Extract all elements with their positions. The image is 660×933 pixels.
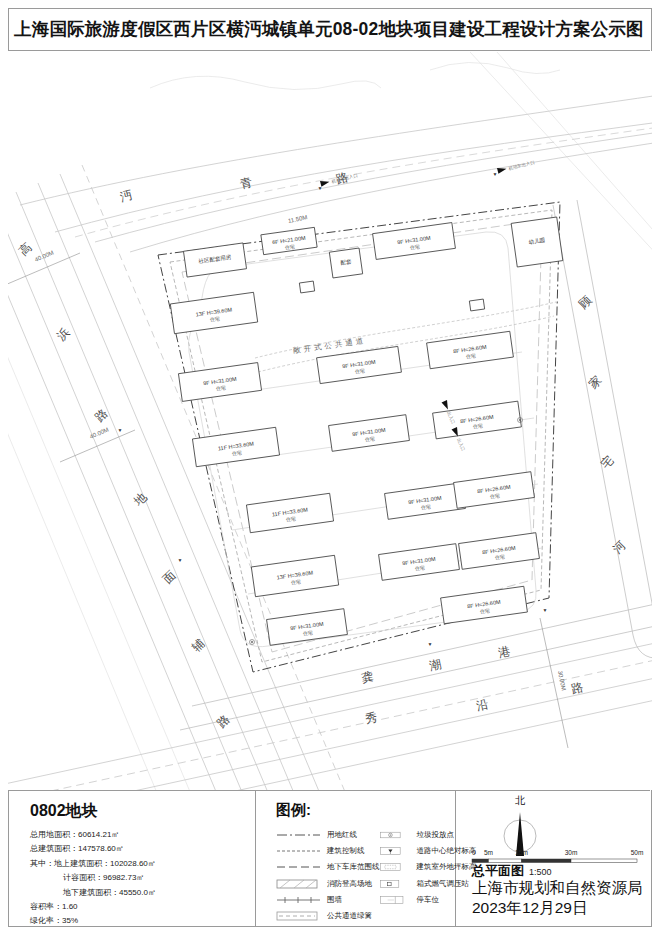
- building: 9F H=31.00M住宅: [385, 483, 466, 520]
- parcel-title: 0802地块: [30, 801, 255, 822]
- dimension-text: 40.00M: [34, 249, 55, 262]
- agency-name: 上海市规划和自然资源局: [472, 878, 643, 899]
- trash-symbol: [380, 829, 412, 841]
- building: 9F H=31.00M住宅: [329, 415, 410, 452]
- building: 11F H=33.60M住宅: [246, 493, 333, 532]
- bldg-elev-symbol: [380, 861, 412, 873]
- road-elevation-marker: ▼: [543, 607, 548, 613]
- north-label: 北: [490, 794, 550, 808]
- road-elevation-marker: ▼: [118, 427, 123, 433]
- road-name-char: 河: [610, 538, 628, 556]
- building: 8F H=26.60M住宅: [427, 331, 514, 368]
- dimension-text: 11.50M: [287, 214, 307, 224]
- building: 9F H=31.00M住宅: [317, 346, 402, 383]
- legend-item-label: 地下车库范围线: [327, 862, 380, 872]
- scale-bar-segment: [571, 859, 637, 863]
- dashdot-symbol: [276, 829, 322, 841]
- stat-row: 总用地面积：60614.21㎡: [30, 828, 255, 842]
- stat-row: 总建筑面积：147578.60㎡: [30, 842, 255, 856]
- road-name-char: 沔: [119, 188, 134, 204]
- road-elev-symbol: [380, 845, 412, 857]
- buildings-layer: 社区配套用房6F H=21.00M住宅配套9F H=31.00M住宅幼儿园13F…: [170, 217, 563, 645]
- scale-tick-label: 30m: [565, 849, 578, 856]
- road-name-char: 浜: [54, 325, 72, 343]
- stat-row: 容积率：1.60: [30, 900, 255, 914]
- building: [299, 281, 314, 293]
- road-name-char: 顾: [576, 293, 594, 311]
- road-elevation-marker: ▼: [428, 641, 433, 647]
- parcel-info-panel: 0802地块 总用地面积：60614.21㎡总建筑面积：147578.60㎡其中…: [8, 791, 256, 926]
- legend-column-left: 用地红线建筑控制线地下车库范围线消防登高场地围墙公共通道绿篱: [276, 827, 380, 924]
- road-name-char: 青: [239, 175, 254, 191]
- legend-item: 围墙: [276, 892, 380, 908]
- gas-symbol: [380, 878, 412, 890]
- road-elevation-marker: ▼: [178, 557, 183, 563]
- dashed-fine-symbol: [276, 845, 322, 857]
- entrance-marker: 机动车出入口: [497, 159, 535, 174]
- stat-row: 计容面积：96982.73㎡: [30, 871, 255, 885]
- road-elevation-marker: ▼: [318, 185, 323, 191]
- legend-item: 公共通道绿篱: [276, 908, 380, 924]
- building: 幼儿园: [511, 217, 563, 267]
- hedge-symbol: [276, 910, 322, 922]
- building: 9F H=31.00M住宅: [178, 363, 261, 402]
- road-name-char: 路: [214, 712, 232, 730]
- stat-row: 绿化率：35%: [30, 914, 255, 928]
- road-name-char: 路: [92, 406, 110, 424]
- legend-item-label: 公共通道绿篱: [327, 911, 372, 921]
- legend-item-label: 停车位: [417, 895, 440, 905]
- scale-tick-label: 5m: [484, 849, 493, 856]
- building: 6F H=21.00M住宅: [261, 227, 317, 254]
- building: 配套: [329, 248, 362, 278]
- road-elevation-marker: ▼: [493, 171, 498, 177]
- dimension-text: 30.00M: [557, 670, 567, 691]
- fire-pad-symbol: [276, 878, 322, 890]
- entrance-label: 机动车出入口: [508, 160, 535, 171]
- building: 8F H=26.60M住宅: [441, 586, 528, 623]
- building: 9F H=31.00M住宅: [373, 223, 456, 260]
- legend-panel: 图例: 用地红线建筑控制线地下车库范围线消防登高场地围墙公共通道绿篱 垃圾投放点…: [256, 791, 456, 926]
- title-bar: 上海国际旅游度假区西片区横沔城镇单元08-02地块项目建设工程设计方案公示图: [8, 8, 650, 51]
- building: 8F H=26.60M住宅: [454, 472, 535, 509]
- dimension-text: 40.00M: [89, 426, 110, 439]
- stat-row: 其中：地上建筑面积：102028.60㎡: [30, 857, 255, 871]
- legend-item-label: 建筑控制线: [327, 846, 365, 856]
- legend-item: 消防登高场地: [276, 876, 380, 892]
- legend-item: 用地红线: [276, 827, 380, 843]
- building: 13F H=39.60M住宅: [170, 292, 257, 333]
- building: [469, 299, 484, 311]
- road-name-char: 潮: [428, 657, 443, 673]
- building: 11F H=33.60M住宅: [192, 427, 279, 466]
- road-name-char: 面: [160, 568, 178, 586]
- fence-symbol: [276, 894, 322, 906]
- road-name-char: 龚: [360, 669, 375, 685]
- road-name-char: 路: [570, 680, 585, 696]
- road-name-char: 沿: [475, 697, 490, 713]
- plan-sheet: 上海国际旅游度假区西片区横沔城镇单元08-02地块项目建设工程设计方案公示图: [0, 0, 660, 933]
- building: 9F H=31.00M住宅: [267, 609, 348, 646]
- title-block-panel: 北 05m15m30m50m 总平面图1:500 上海市规划和自然资源局 202…: [456, 791, 650, 926]
- stat-row: 地下建筑面积：45550.0㎡: [30, 886, 255, 900]
- drawing-scale: 1:500: [529, 867, 552, 877]
- dashed-long-symbol: [276, 861, 322, 873]
- building: 13F H=39.60M住宅: [251, 555, 338, 596]
- legend-item: 建筑控制线: [276, 843, 380, 859]
- legend-item-label: 消防登高场地: [327, 879, 372, 889]
- publish-date: 2023年12月29日: [472, 898, 587, 919]
- road-name-char: 辅: [189, 636, 207, 654]
- parcel-stats: 总用地面积：60614.21㎡总建筑面积：147578.60㎡其中：地上建筑面积…: [30, 828, 255, 929]
- building: 8F H=26.60M住宅: [459, 533, 540, 570]
- entrance-label: 出入口: [456, 437, 466, 451]
- scale-tick-label: 15m: [515, 849, 528, 856]
- road-name-char: 高: [16, 240, 34, 258]
- road-name-char: 秀: [364, 710, 379, 726]
- building: 社区配套用房: [183, 243, 246, 277]
- road-name-char: 宅: [598, 453, 616, 471]
- legend-item-label: 垃圾投放点: [417, 830, 455, 840]
- scale-tick-label: 50m: [631, 849, 644, 856]
- legend-item: 地下车库范围线: [276, 859, 380, 875]
- legend-title: 图例:: [276, 801, 455, 820]
- parking-symbol: [380, 894, 412, 906]
- legend-item-label: 围墙: [327, 895, 342, 905]
- info-strip: 0802地块 总用地面积：60614.21㎡总建筑面积：147578.60㎡其中…: [8, 790, 650, 926]
- scale-tick-label: 0: [472, 849, 476, 856]
- site-plan-drawing: 社区配套用房6F H=21.00M住宅配套9F H=31.00M住宅幼儿园13F…: [8, 51, 652, 790]
- legend-item-label: 用地红线: [327, 830, 357, 840]
- river-east-lines: [553, 200, 652, 658]
- road-name-char: 港: [497, 644, 512, 660]
- road-name-char: 家: [586, 373, 604, 391]
- building: 9F H=31.00M住宅: [379, 544, 460, 581]
- page-title: 上海国际旅游度假区西片区横沔城镇单元08-02地块项目建设工程设计方案公示图: [14, 17, 644, 41]
